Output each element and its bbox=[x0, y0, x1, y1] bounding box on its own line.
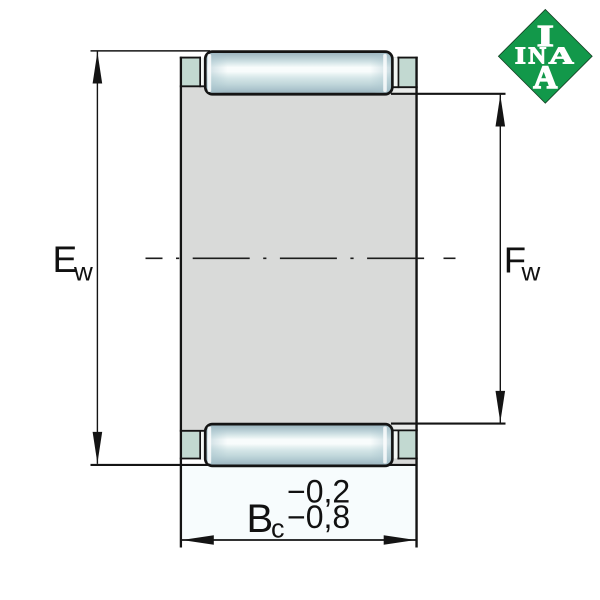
svg-text:B: B bbox=[247, 497, 274, 541]
svg-text:c: c bbox=[271, 514, 285, 544]
svg-text:A: A bbox=[533, 60, 557, 96]
svg-text:w: w bbox=[73, 257, 93, 287]
svg-text:−0,8: −0,8 bbox=[287, 499, 350, 535]
svg-text:I: I bbox=[515, 41, 526, 69]
svg-text:w: w bbox=[521, 257, 541, 287]
